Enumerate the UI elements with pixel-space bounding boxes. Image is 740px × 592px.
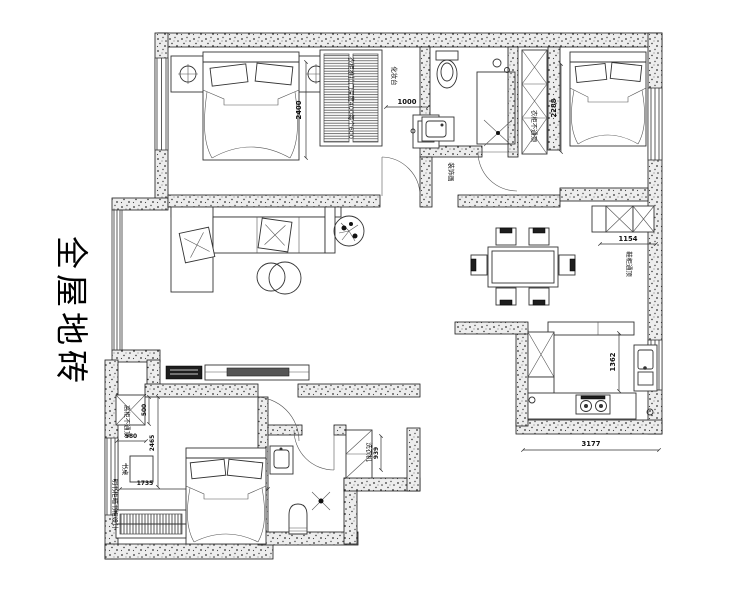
sofa <box>171 207 341 292</box>
nightstand-left <box>171 56 205 92</box>
door-bathroom1 <box>478 152 517 191</box>
tv-cabinet <box>166 365 309 380</box>
coffee-table <box>257 262 301 294</box>
bookcase-note-label: 明书柜暗书柜设计 <box>111 478 120 530</box>
dining-chair <box>529 288 549 305</box>
dim-cabinet-w: 580 <box>117 434 146 441</box>
dim-kitchen-width: 3177 <box>523 440 659 450</box>
dresser-label: 化妆台 <box>390 66 399 85</box>
dim-kitchen: 1362 <box>609 333 619 391</box>
door-bathroom2 <box>294 430 334 470</box>
dim-laundry-value: 939 <box>374 447 380 459</box>
dining-set <box>471 228 575 305</box>
tall-cabinet: 高柜不通顶 <box>116 395 145 438</box>
floor-plan-page: 2400 衣柜推拉门深度400每个600 化妆台 1000 装饰画 <box>0 0 740 592</box>
toilet-bathroom2 <box>289 504 307 534</box>
window-bedroom2-right <box>648 88 662 160</box>
bed-bedroom3 <box>186 448 266 544</box>
dim-cabinet-h-value: 500 <box>142 404 148 416</box>
dim-shoe-cabinet-value: 1154 <box>619 235 638 243</box>
desk-label: 书桌 <box>121 463 130 476</box>
hall-wardrobe-label: 衣柜不通顶 <box>530 110 539 143</box>
kitchen <box>528 322 657 419</box>
wardrobe-bedroom1: 衣柜推拉门深度400每个600 <box>320 50 382 146</box>
fridge <box>528 332 554 377</box>
potted-plant <box>334 216 364 246</box>
decor-painting-label: 装饰画 <box>447 162 456 181</box>
dim-cabinet-w-value: 580 <box>125 434 137 440</box>
desk: 书桌 <box>121 456 153 482</box>
dim-bed2-value: 2288 <box>550 98 558 117</box>
dining-chair <box>559 255 575 275</box>
water-heater-icon <box>493 59 510 73</box>
door-bedroom1 <box>382 157 420 196</box>
dim-dresser-value: 1000 <box>398 98 417 106</box>
vanity-bathroom1 <box>422 117 454 141</box>
shoe-cabinet-label: 鞋柜通顶 <box>625 251 634 277</box>
dim-bed1-value: 2400 <box>295 100 303 119</box>
bed-master <box>203 52 299 160</box>
dim-bed3-wall-value: 1735 <box>137 481 153 487</box>
stove <box>576 395 610 414</box>
whole-house-floor-label: 全屋地砖 <box>52 236 91 388</box>
dining-chair <box>471 255 487 275</box>
dim-laundry: 939 <box>374 436 381 470</box>
bookcase: 明书柜暗书柜设计 <box>111 478 186 538</box>
wardrobe-note-label: 衣柜推拉门深度400每个600 <box>347 57 356 139</box>
washer-cabinet: 洗衣机 <box>346 430 374 478</box>
kitchen-sink <box>634 345 657 391</box>
bed-bedroom2 <box>570 52 646 146</box>
dining-table <box>488 247 558 287</box>
dim-shoe-cabinet: 1154 <box>600 235 656 244</box>
vanity-bathroom2 <box>270 446 293 474</box>
washer-label: 洗衣机 <box>365 442 374 462</box>
dining-chair <box>496 288 516 305</box>
window-bedroom1-left <box>155 58 168 150</box>
dim-kitchen-width-value: 3177 <box>582 440 601 448</box>
window-bay-left <box>112 210 122 350</box>
floor-drain <box>312 492 330 510</box>
dim-desk-wall-value: 2465 <box>150 435 156 451</box>
floor-plan-drawing: 2400 衣柜推拉门深度400每个600 化妆台 1000 装饰画 <box>0 0 740 592</box>
toilet-bathroom1 <box>436 51 458 88</box>
hall-wardrobe: 衣柜不通顶 <box>522 50 547 154</box>
dining-chair <box>529 228 549 245</box>
tall-cabinet-label: 高柜不通顶 <box>123 405 132 438</box>
dim-kitchen-value: 1362 <box>609 352 617 371</box>
dining-chair <box>496 228 516 245</box>
